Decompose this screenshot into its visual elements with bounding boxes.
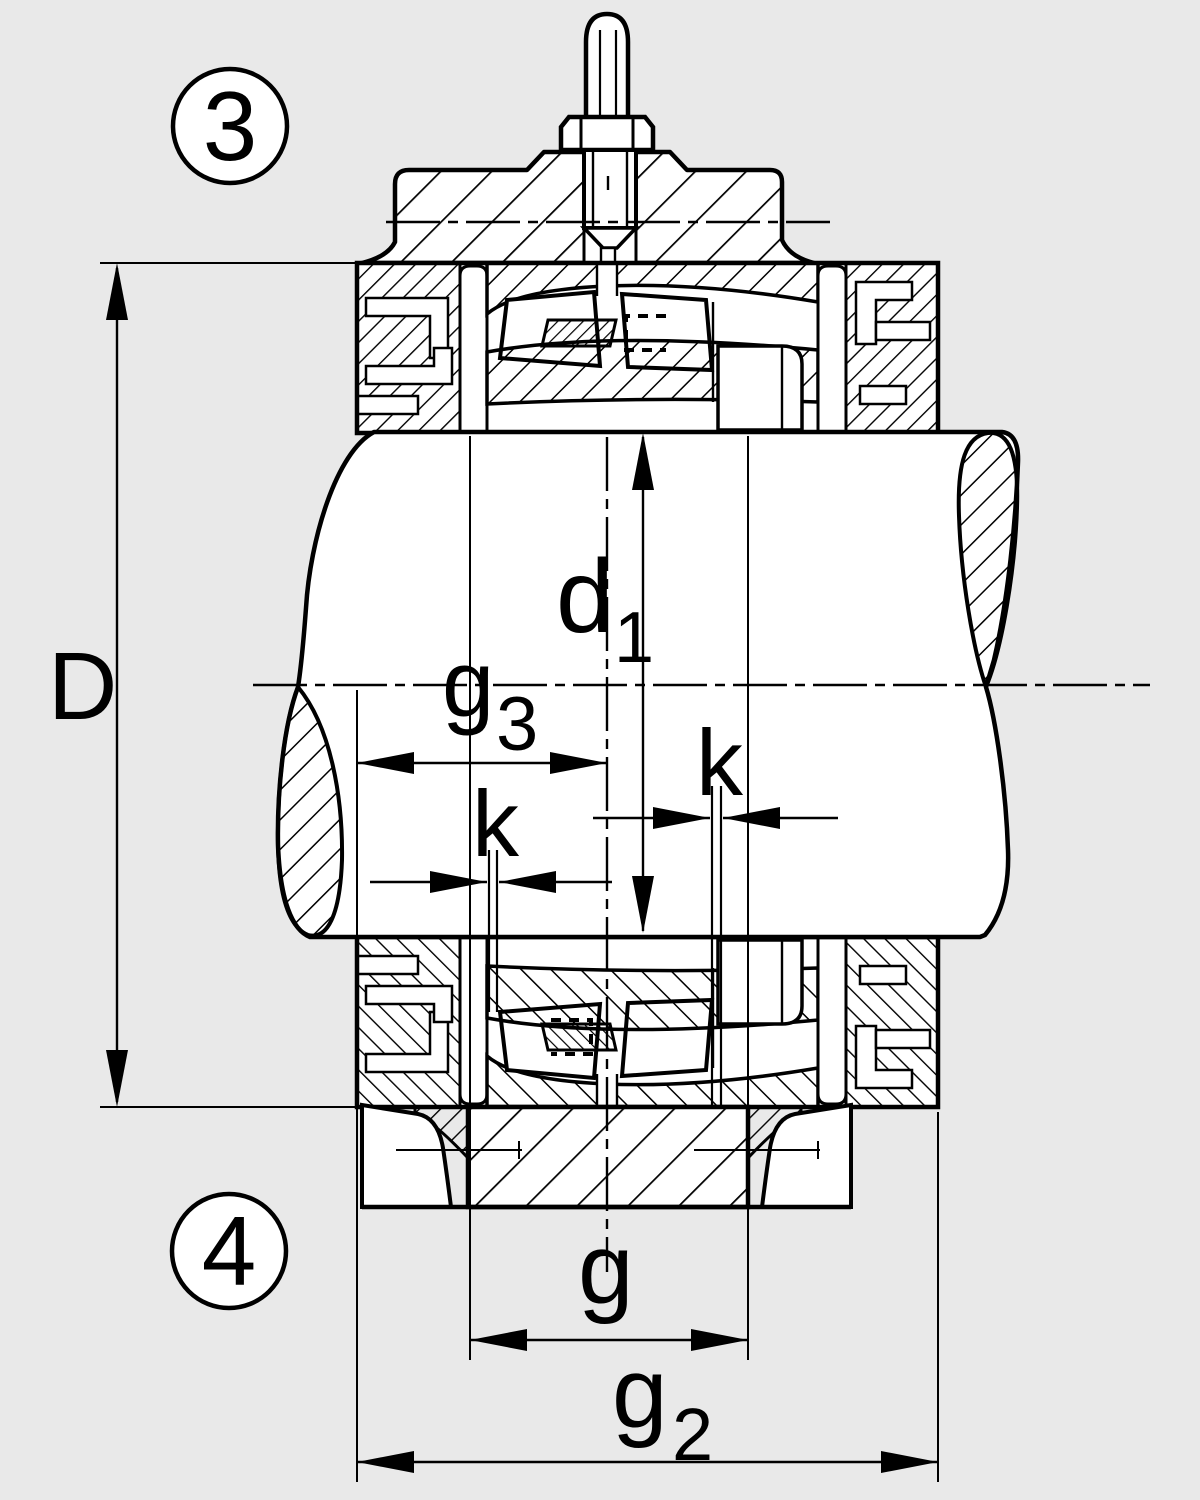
bearing-housing-section-drawing: D d 1 g 3 k k g g 2 [0,0,1200,1500]
seal-channel-left [460,266,487,433]
labyrinth-groove [860,386,906,404]
callout-3: 3 [173,69,287,183]
callout-4-number: 4 [202,1196,257,1306]
label-D: D [48,633,117,740]
label-g: g [578,1213,634,1325]
label-g3: g [442,631,494,736]
labyrinth-groove [357,396,418,414]
label-d1: d [556,539,614,655]
labyrinth-groove [876,322,930,340]
callout-4: 4 [172,1194,286,1308]
label-k-left: k [472,771,520,876]
housing-lower-section [357,937,938,1107]
label-d1-sub: 1 [614,598,654,678]
label-g3-sub: 3 [496,682,538,767]
retaining-ring [718,346,802,430]
callout-3-number: 3 [203,71,258,181]
dimension-g2: g 2 [357,1337,938,1476]
dimension-g: g [470,1213,748,1351]
dimension-D: D [48,263,128,1107]
label-k-right: k [696,710,744,815]
label-g2: g [612,1337,668,1449]
label-g2-sub: 2 [672,1393,713,1476]
seal-channel-right [818,266,846,433]
drawing-stage: D d 1 g 3 k k g g 2 [0,0,1200,1500]
nipple-hex [561,117,653,150]
